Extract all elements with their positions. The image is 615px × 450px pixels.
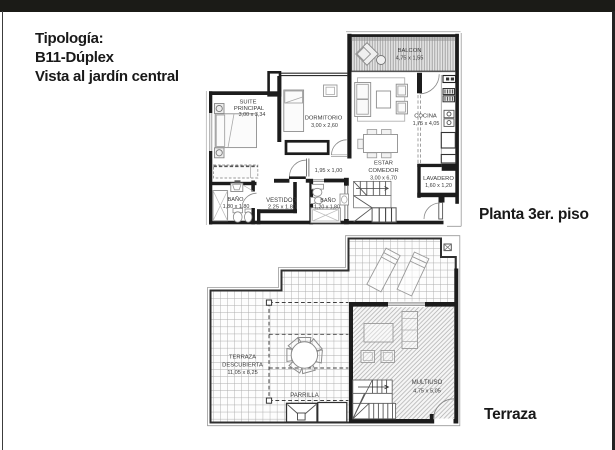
svg-text:LAVADERO: LAVADERO — [423, 176, 454, 182]
svg-text:PARRILLA: PARRILLA — [290, 393, 319, 399]
svg-text:BAÑO: BAÑO — [228, 196, 245, 203]
svg-text:BAÑO: BAÑO — [320, 197, 336, 204]
svg-text:COMEDOR: COMEDOR — [368, 168, 398, 174]
svg-text:1,95 x 1,00: 1,95 x 1,00 — [315, 168, 343, 174]
svg-text:BALCON: BALCON — [398, 48, 422, 54]
svg-text:1,75 x 4,05: 1,75 x 4,05 — [413, 121, 440, 127]
svg-text:2.25 x 1.80: 2.25 x 1.80 — [268, 205, 296, 211]
svg-text:4,75 x 5,05: 4,75 x 5,05 — [413, 389, 441, 395]
svg-text:COCINA: COCINA — [414, 113, 437, 119]
svg-text:SUITE: SUITE — [239, 100, 256, 106]
svg-text:1,80 x 1,80: 1,80 x 1,80 — [223, 204, 250, 210]
svg-text:ESTAR: ESTAR — [374, 160, 393, 166]
svg-text:3,00 x 6,70: 3,00 x 6,70 — [370, 175, 397, 181]
svg-text:11,05 x 8,25: 11,05 x 8,25 — [227, 370, 257, 376]
svg-text:DORMITORIO: DORMITORIO — [305, 115, 343, 121]
svg-text:4,75 x 1,55: 4,75 x 1,55 — [396, 56, 424, 62]
svg-text:TERRAZA: TERRAZA — [229, 355, 256, 361]
svg-text:DESCUBIERTA: DESCUBIERTA — [222, 363, 263, 369]
svg-text:1,60 x 1,20: 1,60 x 1,20 — [425, 183, 452, 189]
svg-text:1,20 x 1,80: 1,20 x 1,80 — [314, 205, 340, 211]
svg-text:VESTIDOR: VESTIDOR — [266, 198, 297, 204]
svg-text:MULTIUSO: MULTIUSO — [412, 380, 443, 386]
svg-text:3,00 x 3,34: 3,00 x 3,34 — [239, 112, 266, 118]
svg-text:3,00 x 2,60: 3,00 x 2,60 — [311, 123, 338, 129]
